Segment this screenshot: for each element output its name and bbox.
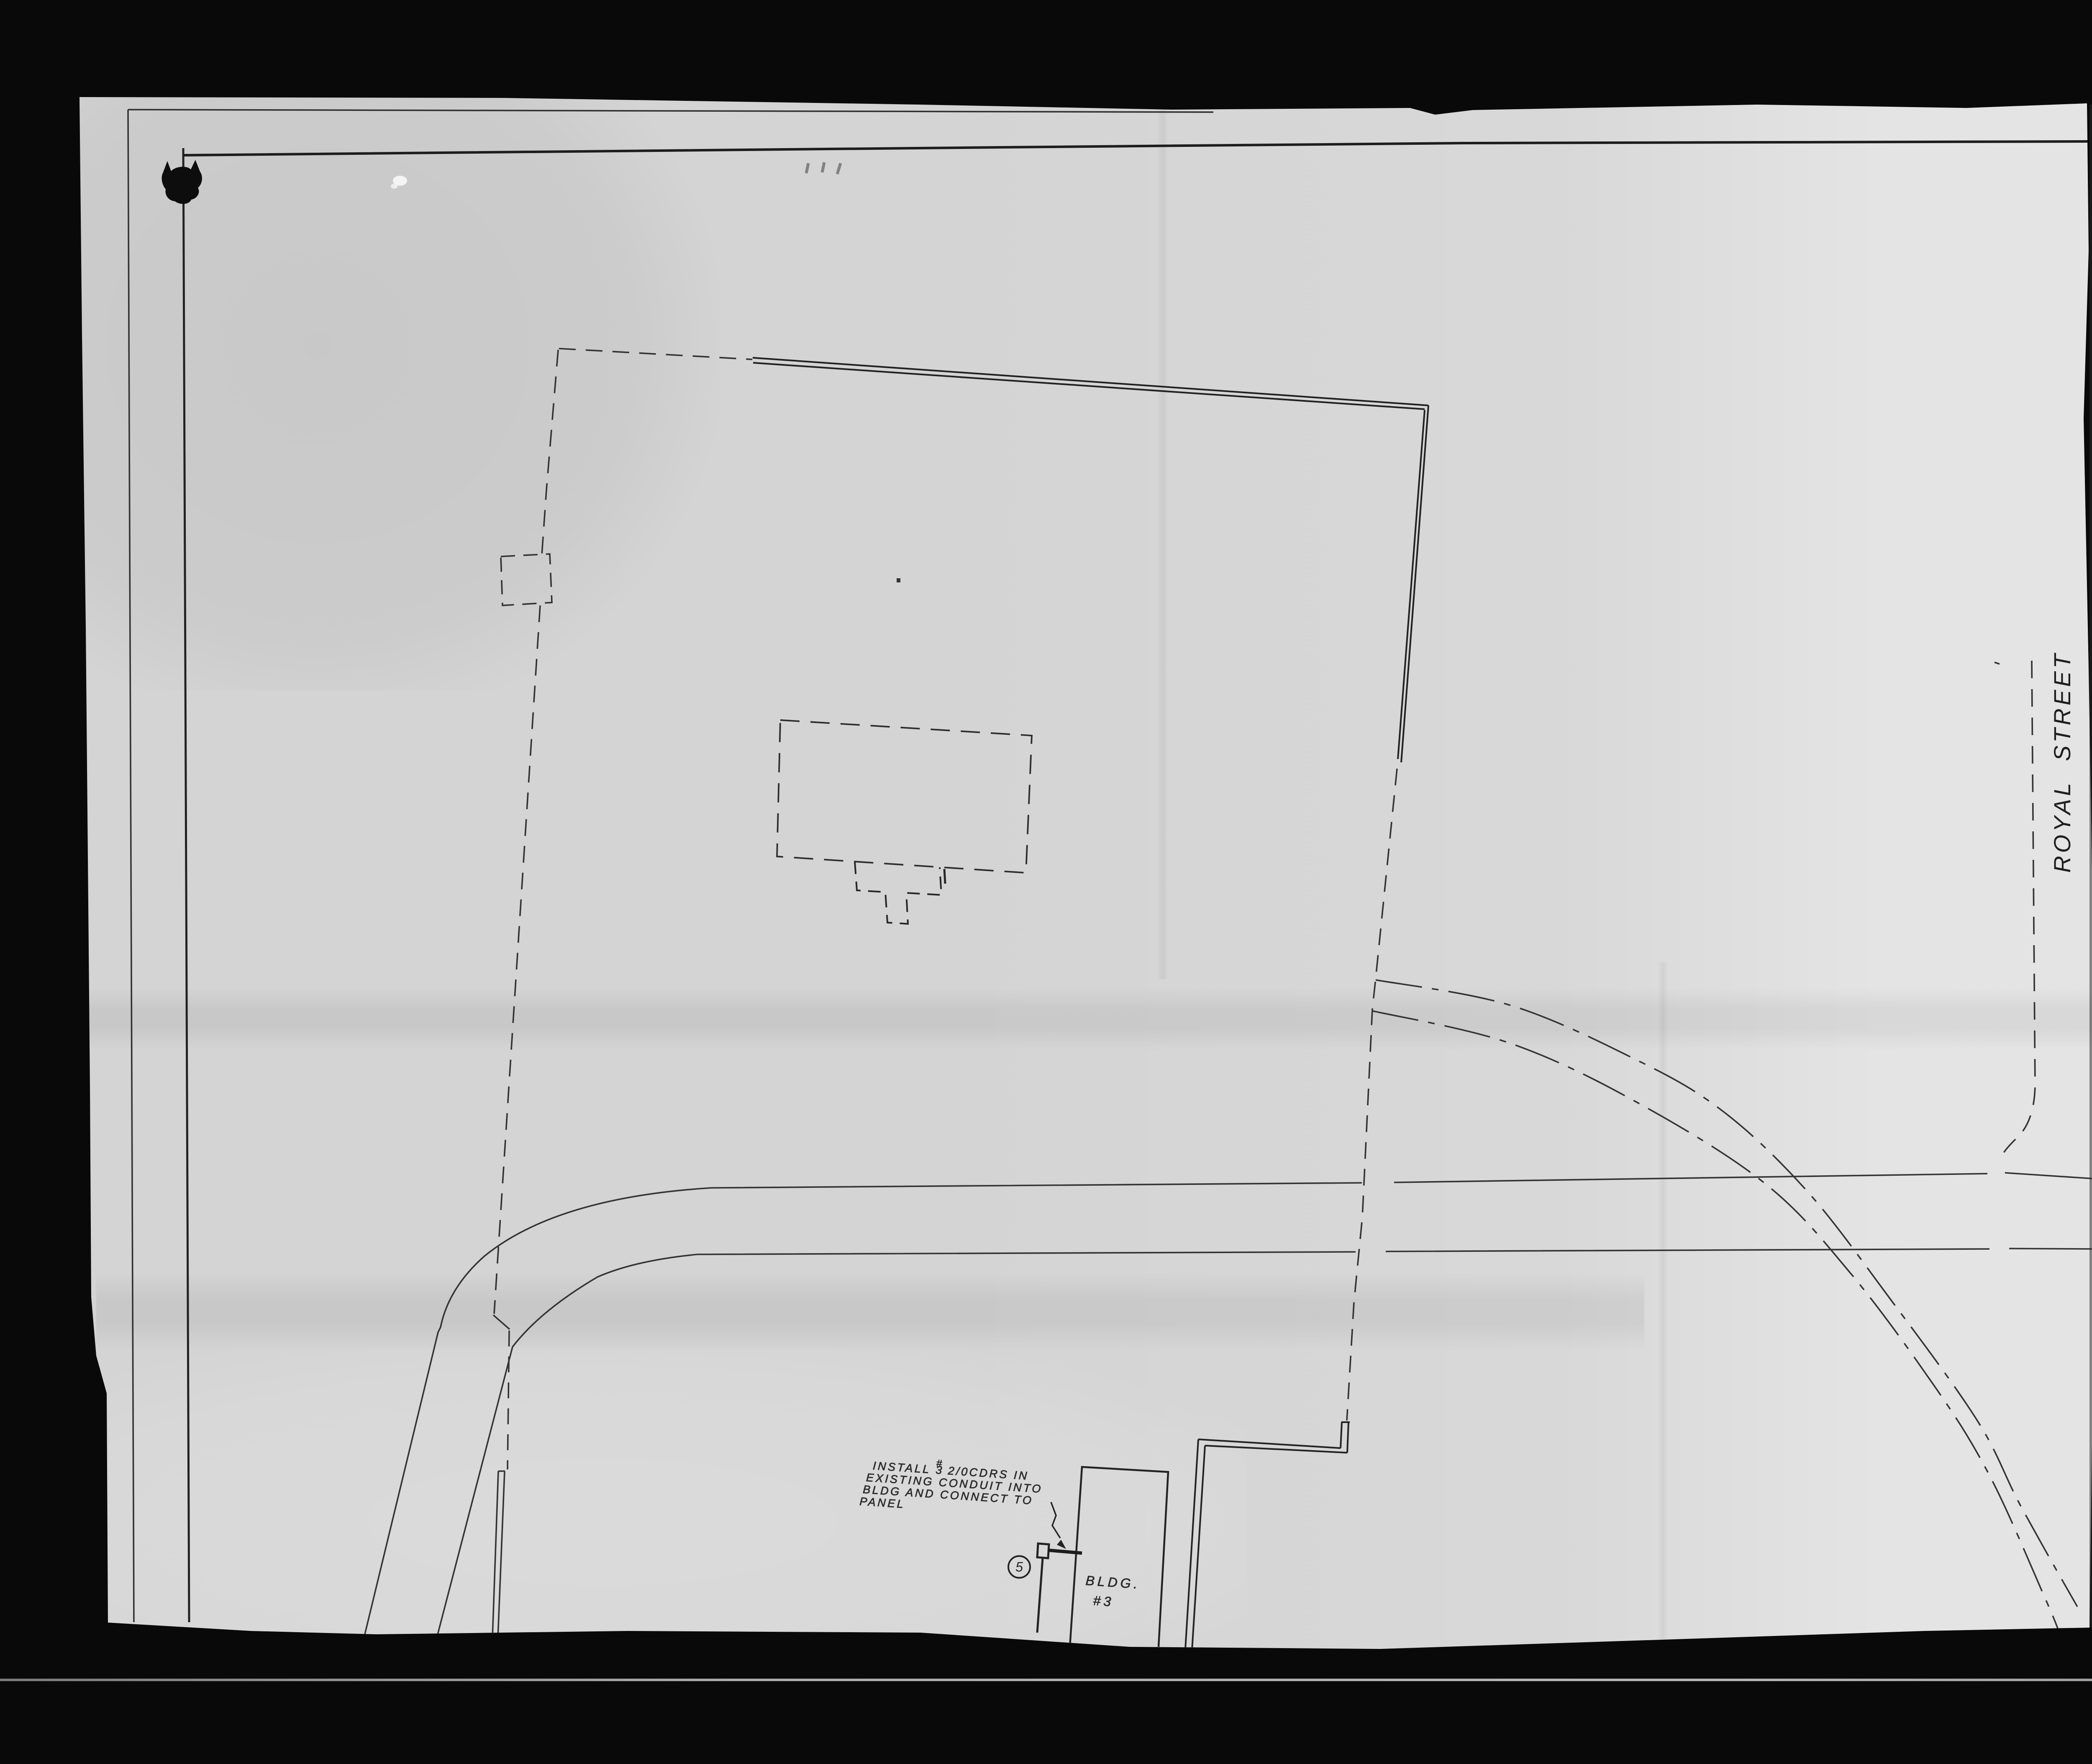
svg-text:5: 5 <box>1015 1559 1023 1574</box>
svg-text:#: # <box>936 1458 944 1469</box>
svg-text:#3: #3 <box>1093 1593 1115 1609</box>
svg-text:ROYAL STREET: ROYAL STREET <box>2049 651 2075 873</box>
